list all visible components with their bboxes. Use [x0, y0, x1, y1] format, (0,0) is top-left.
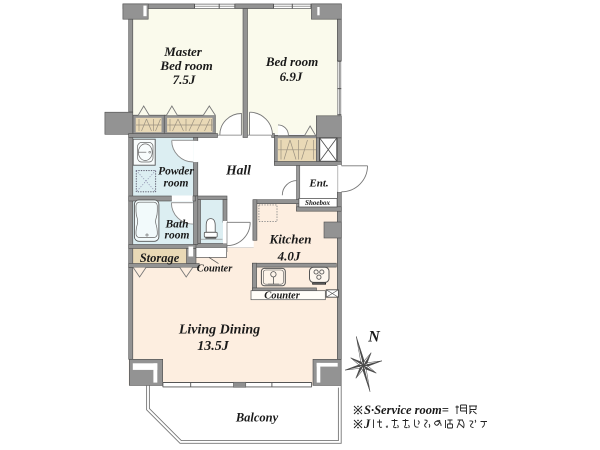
svg-text:Shoebox: Shoebox: [305, 199, 330, 207]
svg-text:room: room: [164, 178, 189, 190]
svg-text:Bed room: Bed room: [159, 58, 212, 73]
svg-text:4.0J: 4.0J: [277, 249, 301, 264]
svg-text:Storage: Storage: [140, 251, 180, 265]
svg-text:Counter: Counter: [197, 264, 234, 275]
svg-text:S·Service room=: S·Service room=: [364, 403, 449, 417]
svg-text:Kitchen: Kitchen: [269, 232, 312, 247]
svg-text:room: room: [165, 230, 190, 242]
svg-text:Balcony: Balcony: [235, 411, 279, 425]
svg-text:N: N: [367, 329, 381, 346]
svg-text:Counter: Counter: [264, 291, 301, 302]
svg-text:Hall: Hall: [225, 163, 251, 178]
svg-text:Powder: Powder: [158, 166, 194, 178]
svg-text:7.5J: 7.5J: [173, 72, 196, 87]
svg-text:Bed room: Bed room: [265, 54, 318, 69]
svg-text:Ent.: Ent.: [308, 178, 328, 190]
svg-text:13.5J: 13.5J: [197, 339, 230, 354]
svg-text:6.9J: 6.9J: [280, 69, 303, 84]
svg-text:Master: Master: [163, 44, 203, 59]
svg-text:J: J: [363, 417, 371, 431]
svg-text:Living Dining: Living Dining: [178, 323, 260, 338]
